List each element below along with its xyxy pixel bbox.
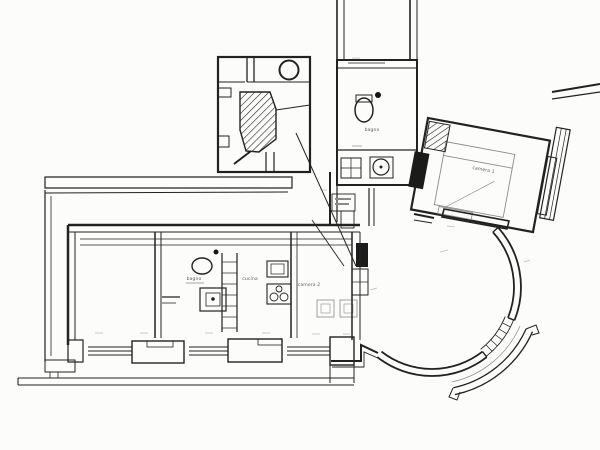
stair-column-icon xyxy=(280,61,299,80)
stairwell-block xyxy=(218,57,310,172)
stove-icon xyxy=(267,284,291,304)
kitchen-label: cucina xyxy=(242,276,258,282)
bathroom-lower-label: bagno xyxy=(187,276,202,282)
room-two: camera 2 xyxy=(298,282,357,317)
bathroom-lower: bagno xyxy=(162,250,226,312)
window-bay xyxy=(132,341,184,363)
bedroom-label: camera 1 xyxy=(472,165,495,175)
sink-icon xyxy=(267,261,288,277)
closet-block xyxy=(408,151,429,189)
bed-icon xyxy=(434,142,514,218)
window-bay xyxy=(228,339,282,362)
bathroom-upper: bagno xyxy=(337,0,417,185)
stair-flight-hatch xyxy=(240,92,276,152)
hall-closet-block xyxy=(356,243,368,267)
toilet-icon xyxy=(192,258,212,274)
dimension-marks xyxy=(95,58,530,334)
floor-plan: bagno camera 1 xyxy=(0,0,600,450)
corridor-wall xyxy=(45,177,292,193)
apartment-block: bagno xyxy=(18,190,360,385)
floor-plan-page: bagno camera 1 xyxy=(0,0,600,450)
curved-window xyxy=(481,317,514,357)
street-facade xyxy=(18,337,354,385)
hallway xyxy=(296,133,509,295)
cabinet-strip xyxy=(222,253,237,332)
kitchen: cucina xyxy=(242,232,297,338)
bathroom-upper-label: bagno xyxy=(365,127,380,133)
room-two-label: camera 2 xyxy=(298,282,321,288)
drain-dot xyxy=(375,92,381,98)
hall-note-box xyxy=(332,194,355,211)
wardrobe-icon xyxy=(424,121,450,151)
